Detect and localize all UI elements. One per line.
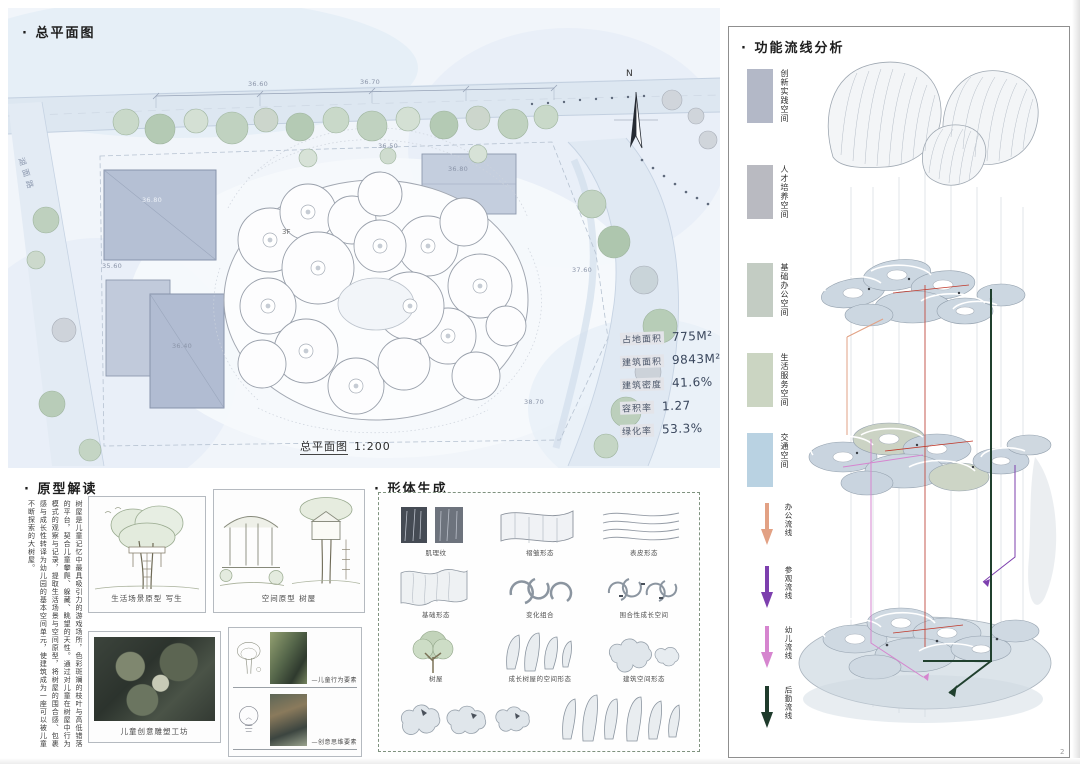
site-plan-drawing: N <box>8 8 720 468</box>
workshop-photo <box>94 637 215 721</box>
stat-label: 建筑面积 <box>620 354 664 369</box>
stat-row: 占地面积 775M² <box>620 328 724 346</box>
legend-swatch <box>747 433 773 487</box>
prototype-title: · 原型解读 <box>24 478 97 497</box>
stat-value: 775M² <box>672 329 713 344</box>
stat-row: 绿化率 53.3% <box>620 420 724 438</box>
plan-scale-caption: 总平面图1:200 <box>300 438 391 454</box>
site-plan-section: N · 总平面图 湖面路 3F 36.60 36.70 36.50 36.80 … <box>8 8 720 468</box>
level-1-plates <box>819 255 1025 326</box>
legend-swatch <box>747 69 773 123</box>
form-cell: 变化组合 <box>491 565 589 619</box>
dimension-label: 36.40 <box>172 342 192 350</box>
form-cell: 成长树屋的空间形态 <box>491 629 589 683</box>
treehouse-sketch <box>89 497 205 593</box>
stat-value: 9843M² <box>672 351 721 367</box>
workshop-photo-box: 儿童创意雕塑工坊 <box>88 631 221 743</box>
axonometric-diagram <box>773 37 1065 749</box>
photo-caption: 儿童创意雕塑工坊 <box>89 726 220 737</box>
form-caption: 变化组合 <box>491 609 589 619</box>
form-caption: 肌理纹 <box>387 547 485 557</box>
dimension-label: 36.70 <box>360 78 380 86</box>
form-caption: 围合性成长空间 <box>595 609 693 619</box>
stat-value: 41.6% <box>672 375 713 390</box>
stat-row: 建筑密度 41.6% <box>620 374 724 392</box>
floor-label: 3F <box>282 228 290 236</box>
building-mass-icon <box>595 629 687 673</box>
base-form-icon <box>387 565 479 609</box>
presentation-board: N · 总平面图 湖面路 3F 36.60 36.70 36.50 36.80 … <box>0 0 1080 764</box>
form-cell: 围合性成长空间 <box>595 565 693 619</box>
site-stats: 占地面积 775M² 建筑面积 9843M² 建筑密度 41.6% 容积率 1.… <box>620 330 724 445</box>
plan-caption-scale: 1:200 <box>354 440 391 453</box>
form-cell: 基础形态 <box>387 565 485 619</box>
element-label: —儿童行为要素 <box>311 675 357 684</box>
tree-line-sketch <box>233 632 264 684</box>
sketch-box-space: 空间原型 树屋 <box>213 489 365 613</box>
treehouse-sketch-2 <box>288 490 364 593</box>
creative-painting <box>270 694 307 746</box>
page-number: 2 <box>1060 748 1064 756</box>
tree-icon <box>387 629 479 673</box>
wall-cluster-icon <box>549 689 699 745</box>
elements-box: —儿童行为要素 —创意思维要素 <box>228 627 362 757</box>
form-caption: 成长树屋的空间形态 <box>491 673 589 683</box>
lightbulb-sketch <box>233 694 264 746</box>
stat-value: 1.27 <box>662 398 691 413</box>
folded-sheet-icon <box>491 503 583 547</box>
form-cell: 树屋 <box>387 629 485 683</box>
sketch-caption-life: 生活场景原型 写生 <box>89 593 205 604</box>
form-caption: 褶皱形态 <box>491 547 589 557</box>
plan-caption-title: 总平面图 <box>300 440 348 455</box>
canopy-surface-icon <box>595 503 687 547</box>
analysis-panel: · 功能流线分析 创新实践空间 人才培养空间 基础办公空间 生活服务空间 交通空… <box>728 26 1070 758</box>
stat-label: 占地面积 <box>620 331 664 346</box>
form-cell <box>393 691 543 743</box>
element-row: —创意思维要素 <box>233 694 357 750</box>
page-edge <box>0 758 1080 764</box>
form-cell <box>549 689 699 745</box>
form-cell: 建筑空间形态 <box>595 629 693 683</box>
form-cell: 褶皱形态 <box>491 503 589 557</box>
dimension-label: 36.60 <box>248 80 268 88</box>
roof-shells <box>828 62 1038 185</box>
form-cell: 肌理纹 <box>387 503 485 557</box>
stat-row: 容积率 1.27 <box>620 397 724 415</box>
pavilion-sketch <box>214 490 288 593</box>
dimension-label: 35.60 <box>102 262 122 270</box>
behavior-painting <box>270 632 307 684</box>
dimension-label: 36.50 <box>378 142 398 150</box>
form-caption: 表皮形态 <box>595 547 693 557</box>
variation-icon <box>491 565 583 609</box>
sketch-caption-space: 空间原型 树屋 <box>214 593 364 604</box>
element-row: —儿童行为要素 <box>233 632 357 688</box>
stat-value: 53.3% <box>662 421 703 436</box>
site-plan-title: · 总平面图 <box>22 22 95 41</box>
treehouse-space-icon <box>491 629 583 673</box>
dimension-label: 36.80 <box>142 196 162 204</box>
legend-swatch <box>747 263 773 317</box>
form-caption: 基础形态 <box>387 609 485 619</box>
prototype-paragraph: 树屋是儿童记忆中最具吸引力的游戏场所，色彩斑斓的枝叶与高低错落的平台，契合儿童攀… <box>22 500 84 752</box>
stat-row: 建筑面积 9843M² <box>620 351 724 369</box>
form-cell: 表皮形态 <box>595 503 693 557</box>
bark-texture-icon <box>387 503 479 547</box>
mass-study-icon <box>393 691 543 743</box>
legend-swatch <box>747 165 773 219</box>
legend-swatch <box>747 353 773 407</box>
form-generation-box: 肌理纹 褶皱形态 表皮形态 <box>378 492 700 752</box>
stat-label: 绿化率 <box>620 424 654 438</box>
enclosure-icon <box>595 565 687 609</box>
page-edge <box>1072 0 1080 764</box>
form-caption: 建筑空间形态 <box>595 673 693 683</box>
dimension-label: 37.60 <box>572 266 592 274</box>
stat-label: 容积率 <box>620 401 654 415</box>
dimension-label: 38.70 <box>524 398 544 406</box>
sketch-box-life: 生活场景原型 写生 <box>88 496 206 613</box>
ground-shadow <box>803 675 1043 723</box>
element-label: —创意思维要素 <box>311 737 357 746</box>
stat-label: 建筑密度 <box>620 377 664 392</box>
dimension-label: 36.80 <box>448 165 468 173</box>
north-label: N <box>626 69 633 79</box>
form-caption: 树屋 <box>387 673 485 683</box>
